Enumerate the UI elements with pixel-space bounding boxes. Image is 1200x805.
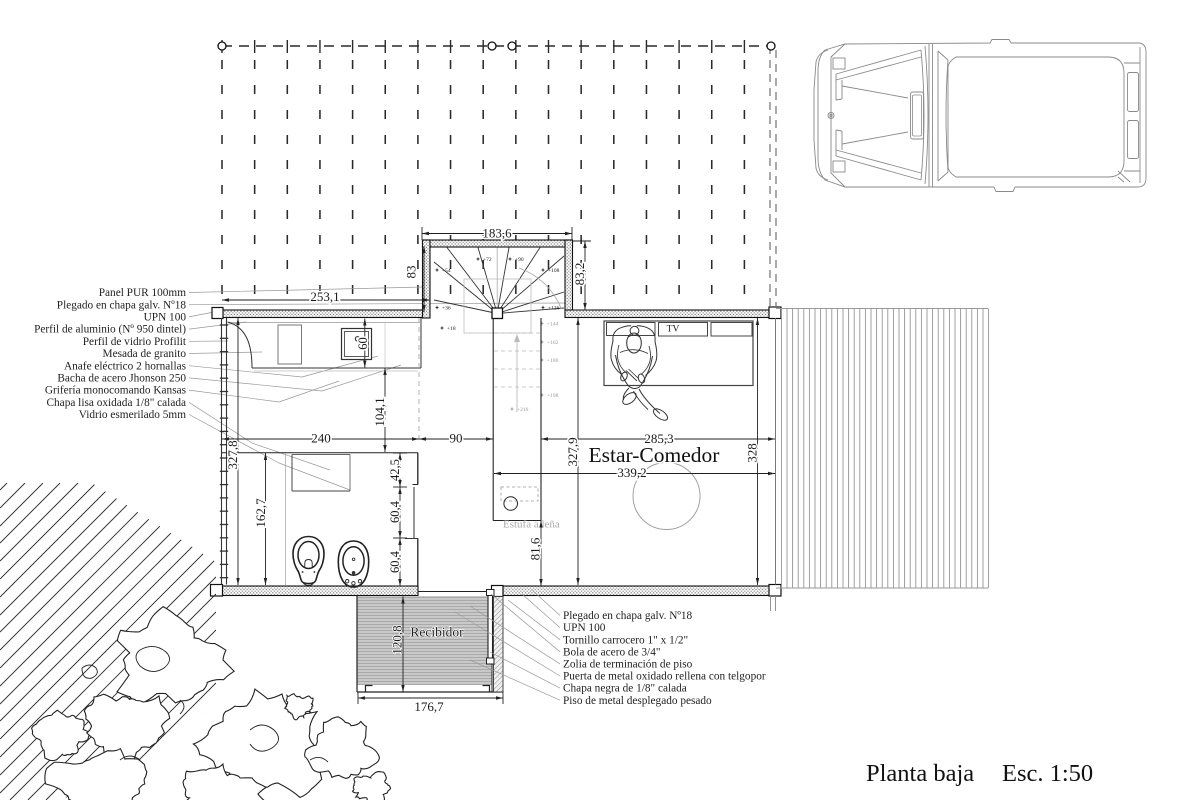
svg-text:+90: +90 [515,257,524,263]
svg-text:UPN 100: UPN 100 [144,312,187,324]
svg-text:183,6: 183,6 [482,226,512,241]
svg-text:90: 90 [450,431,463,446]
svg-text:Vidrio esmerilado 5mm: Vidrio esmerilado 5mm [79,409,186,421]
svg-text:81,6: 81,6 [528,537,543,560]
svg-text:Panel PUR 100mm: Panel PUR 100mm [99,287,186,299]
svg-text:104,1: 104,1 [372,397,387,426]
svg-text:UPN 100: UPN 100 [563,622,606,634]
svg-text:+180: +180 [547,358,559,364]
svg-text:+162: +162 [547,340,559,346]
svg-text:+144: +144 [547,322,559,328]
svg-text:42,5: 42,5 [388,459,402,481]
svg-text:60,4: 60,4 [388,500,402,523]
svg-text:Perfil de aluminio (Nº 950 din: Perfil de aluminio (Nº 950 dintel) [34,324,186,336]
svg-text:Esc. 1:50: Esc. 1:50 [1002,760,1093,787]
svg-text:176,7: 176,7 [414,699,444,714]
svg-text:+36: +36 [442,306,451,312]
svg-text:Zolia de terminación de piso: Zolia de terminación de piso [563,659,693,671]
svg-text:+198: +198 [547,393,559,399]
svg-text:339,2: 339,2 [617,465,646,480]
svg-text:Bola de acero de 3/4": Bola de acero de 3/4" [563,646,660,658]
svg-text:+72: +72 [483,257,492,263]
svg-text:+54: +54 [442,268,451,274]
svg-text:Piso de metal desplegado pesad: Piso de metal desplegado pesado [563,695,712,707]
svg-text:+126: +126 [548,306,560,312]
svg-text:Anafe eléctrico 2 hornallas: Anafe eléctrico 2 hornallas [64,360,186,372]
svg-text:Tornillo carrocero 1" x 1/2": Tornillo carrocero 1" x 1/2" [563,634,688,646]
svg-text:+108: +108 [548,268,560,274]
svg-text:+216: +216 [517,407,529,413]
svg-text:Puerta de metal oxidado rellen: Puerta de metal oxidado rellena con telg… [563,671,766,683]
svg-text:Plegado en chapa galv. Nº18: Plegado en chapa galv. Nº18 [57,299,187,311]
svg-text:TV: TV [667,325,680,335]
svg-text:327,8: 327,8 [225,440,240,469]
svg-text:253,1: 253,1 [310,289,339,304]
svg-text:60,4: 60,4 [388,550,402,573]
svg-text:+18: +18 [447,326,456,332]
svg-text:Mesada de granito: Mesada de granito [103,348,187,360]
svg-text:83: 83 [404,266,419,279]
svg-text:328: 328 [745,443,760,463]
svg-text:Planta baja: Planta baja [866,760,974,787]
svg-text:Chapa negra de 1/8" calada: Chapa negra de 1/8" calada [563,683,687,695]
svg-text:327,9: 327,9 [565,437,580,466]
svg-text:60: 60 [356,337,370,350]
svg-text:162,7: 162,7 [253,498,268,528]
svg-text:Estufa a leña: Estufa a leña [503,519,560,531]
svg-text:Chapa lisa oxidada 1/8" calada: Chapa lisa oxidada 1/8" calada [47,397,187,409]
svg-text:240: 240 [311,431,331,446]
svg-text:Grifería monocomando Kansas: Grifería monocomando Kansas [45,385,186,397]
svg-text:120,8: 120,8 [390,625,405,654]
svg-text:Estar-Comedor: Estar-Comedor [589,443,720,467]
svg-text:Recibidor: Recibidor [410,625,464,640]
svg-text:83,2: 83,2 [572,263,587,286]
svg-text:Bacha de acero Jhonson 250: Bacha de acero Jhonson 250 [57,373,186,385]
svg-text:Plegado en chapa galv. Nº18: Plegado en chapa galv. Nº18 [563,610,693,622]
svg-text:Perfil de vidrio Profilit: Perfil de vidrio Profilit [83,336,187,348]
